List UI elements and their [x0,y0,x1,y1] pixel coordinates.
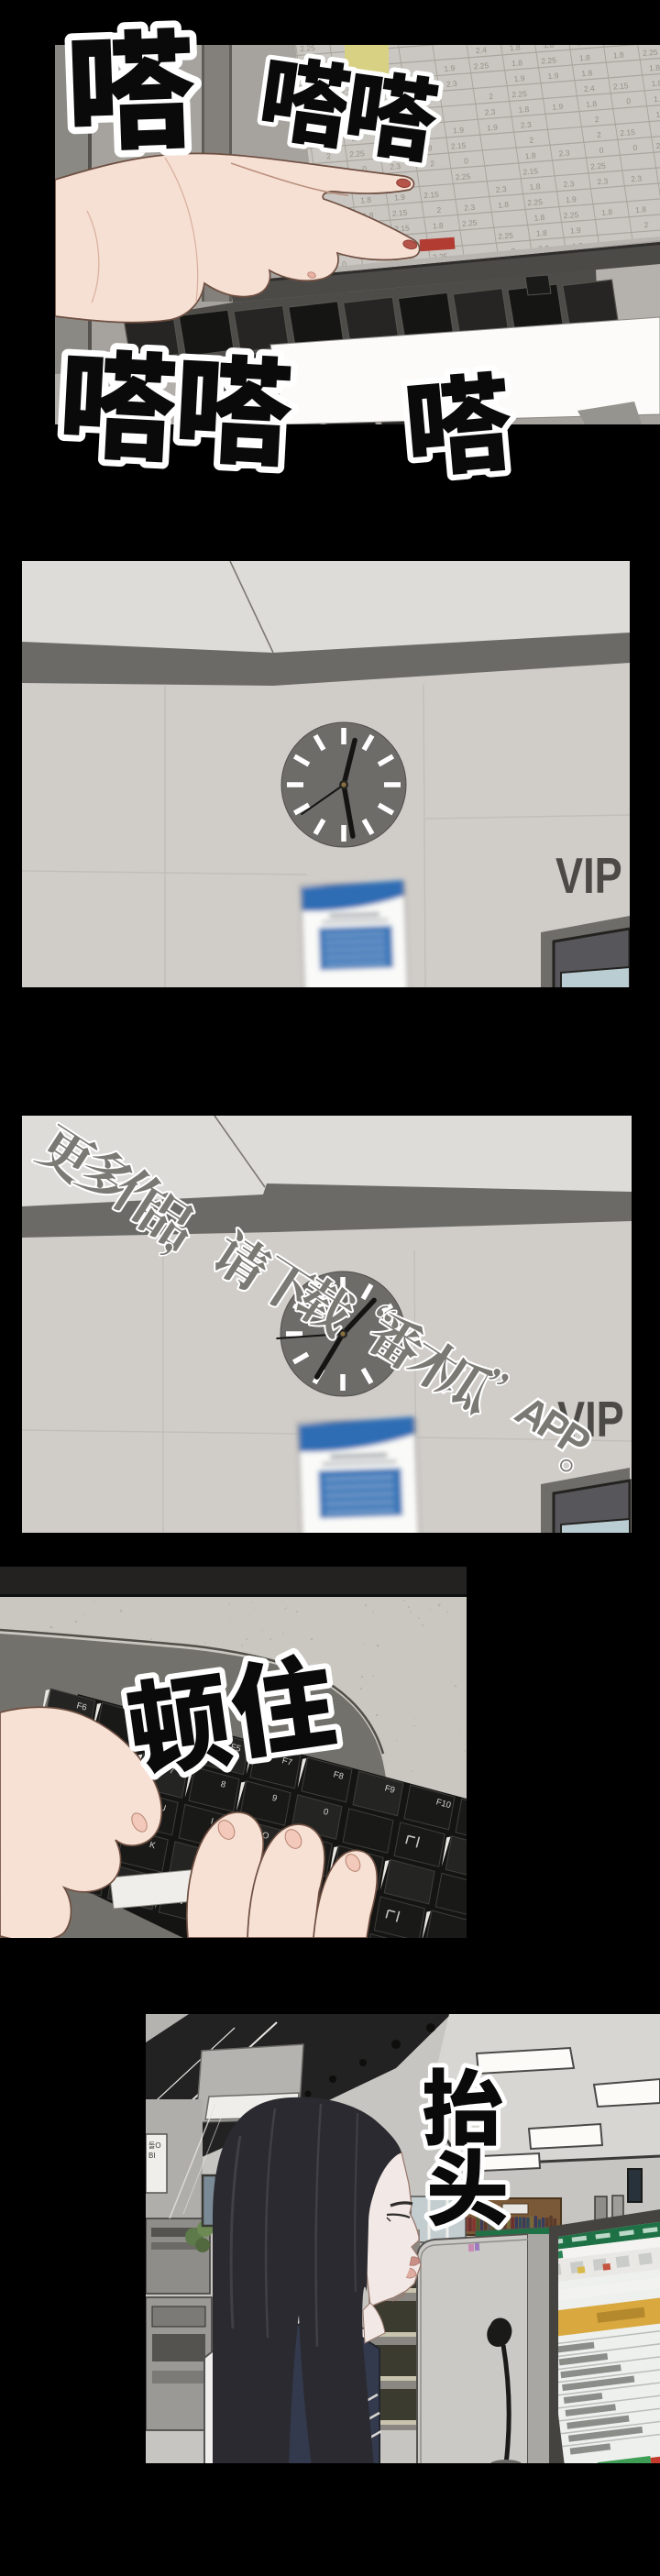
svg-text:1.8: 1.8 [511,58,523,68]
svg-text:2.25: 2.25 [455,171,471,182]
svg-text:1.9: 1.9 [566,194,577,204]
svg-text:2.3: 2.3 [445,79,457,89]
svg-text:1.9: 1.9 [552,102,564,112]
svg-text:2.25: 2.25 [590,160,607,171]
svg-text:1.9: 1.9 [569,226,581,236]
svg-text:2.25: 2.25 [527,197,544,207]
svg-text:1.8: 1.8 [529,182,541,192]
svg-text:1.8: 1.8 [360,195,372,205]
svg-text:2.3: 2.3 [558,149,570,159]
svg-text:2.15: 2.15 [620,127,636,138]
svg-text:2.3: 2.3 [563,179,575,189]
svg-text:2.15: 2.15 [423,190,440,200]
svg-text:돌O: 돌O [148,2141,161,2150]
svg-text:1.8: 1.8 [498,200,510,210]
svg-text:1.8: 1.8 [649,63,660,73]
svg-text:1.8: 1.8 [579,52,591,62]
svg-text:2.25: 2.25 [563,210,579,220]
svg-text:1.8: 1.8 [524,150,536,160]
svg-text:2.15: 2.15 [522,166,539,176]
svg-text:2.15: 2.15 [613,81,630,91]
svg-text:1.9: 1.9 [487,123,499,133]
svg-text:1.9: 1.9 [513,73,525,83]
svg-text:2.15: 2.15 [450,140,467,150]
svg-text:2.25: 2.25 [511,89,528,99]
svg-text:1.8: 1.8 [518,105,530,115]
svg-text:1.8: 1.8 [586,99,598,109]
svg-text:1.8: 1.8 [533,213,545,223]
svg-text:1.8: 1.8 [536,228,548,238]
svg-text:1.9: 1.9 [547,71,559,81]
svg-text:2.25: 2.25 [349,149,366,159]
svg-text:2.25: 2.25 [462,218,478,228]
svg-text:2.25: 2.25 [498,231,514,241]
svg-text:2.3: 2.3 [521,120,533,130]
svg-text:2.4: 2.4 [476,45,488,55]
svg-text:2.3: 2.3 [390,161,401,171]
svg-text:1.8: 1.8 [432,221,444,231]
svg-text:2.3: 2.3 [495,184,507,194]
svg-text:1.8: 1.8 [655,109,660,119]
svg-text:BI: BI [148,2152,156,2160]
svg-text:2.25: 2.25 [541,55,557,65]
svg-text:2.25: 2.25 [643,48,659,58]
svg-text:2.15: 2.15 [391,208,408,218]
svg-text:1.9: 1.9 [654,94,660,104]
svg-text:2.25: 2.25 [473,61,489,71]
svg-text:2.4: 2.4 [583,83,595,94]
svg-text:VIP: VIP [555,847,622,904]
svg-text:1.8: 1.8 [612,50,624,61]
svg-text:1.9: 1.9 [394,193,406,203]
svg-text:1.8: 1.8 [601,207,613,217]
svg-text:2.3: 2.3 [597,176,609,186]
svg-text:1.8: 1.8 [635,204,647,215]
svg-text:2.15: 2.15 [655,140,660,150]
svg-text:1.8: 1.8 [581,68,593,78]
svg-text:1.8: 1.8 [651,78,660,88]
svg-text:2.3: 2.3 [631,173,643,183]
svg-text:1.9: 1.9 [453,126,465,136]
svg-text:2.3: 2.3 [464,203,476,213]
svg-text:2.3: 2.3 [484,107,496,117]
svg-text:1.9: 1.9 [444,63,456,73]
